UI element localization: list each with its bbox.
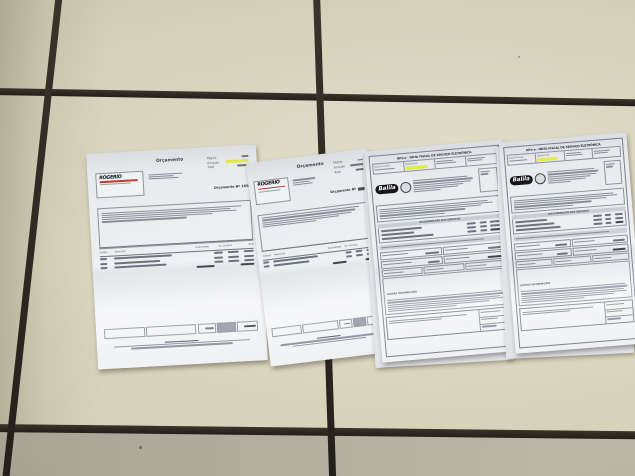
small-box [197, 323, 216, 334]
text-line [607, 318, 621, 320]
municipal-seal-icon [534, 173, 546, 185]
receipt-side-cells [605, 301, 634, 324]
outras-informacoes-label: OUTRAS INFORMAÇÕES [520, 282, 551, 287]
nfse-frame: NFS-e - NOTA FISCAL DE SERVIÇO ELETRÔNIC… [503, 138, 635, 348]
text-line [607, 310, 623, 312]
prestador-side-cell [478, 167, 499, 193]
orcamento-title: Orçamento [156, 157, 184, 164]
text-line [516, 244, 540, 247]
text-line [384, 271, 404, 274]
numero-nf-highlight-mark [537, 157, 557, 162]
text-line [517, 263, 535, 266]
total-label: Total [334, 169, 341, 174]
orcamento-numero: Orçamento Nº [330, 186, 367, 194]
floor-stain [518, 56, 520, 58]
text-line [467, 159, 482, 162]
text-line [574, 249, 596, 252]
prestador-side-cell [603, 160, 622, 185]
col-total: Total [232, 242, 254, 246]
total-label-gray-box [353, 316, 367, 327]
col-quantidade: Quantidade [186, 245, 209, 249]
prestador-info-lines [547, 167, 603, 185]
observacoes-box [302, 320, 339, 334]
text-line [565, 154, 583, 157]
outras-informacoes-label: OUTRAS INFORMAÇÕES [387, 291, 418, 297]
text-line [467, 264, 486, 267]
nfse-frame: NFS-e - NOTA FISCAL DE SERVIÇO ELETRÔNIC… [369, 145, 517, 357]
orcamento-numero: Orçamento Nº 1656 [214, 184, 251, 190]
balila-logo: Balila [509, 175, 533, 185]
col-codigo: Código [263, 253, 274, 257]
numero-label: Orçamento Nº [214, 185, 240, 190]
receipt-text [387, 310, 482, 339]
header-fields [148, 170, 196, 180]
text-line [594, 152, 608, 154]
orcamento-meta: Página Emissão Total [333, 157, 364, 174]
orcamento-title: Orçamento [296, 162, 324, 170]
text-line [436, 161, 456, 164]
text-line [426, 268, 444, 271]
text-line [481, 310, 500, 313]
numero-nf-highlight-mark [406, 165, 429, 170]
text-line [482, 325, 497, 327]
small-box [339, 318, 353, 329]
text-line [606, 166, 613, 168]
observacoes-box [146, 324, 196, 337]
floor-stain [139, 446, 142, 449]
header-fields [292, 175, 327, 187]
total-value-box [237, 320, 259, 331]
text-line [445, 247, 468, 250]
rogerio-logo: ROGERIO [95, 170, 144, 198]
municipal-seal-icon [400, 181, 412, 193]
col-vlr-unitario: Vlr. Unitário [209, 244, 232, 248]
balila-logo: Balila [375, 184, 399, 194]
text-line [517, 253, 543, 256]
prestador-info-lines [413, 174, 478, 194]
col-codigo: Código [99, 250, 115, 254]
logo-address-line [100, 183, 131, 186]
text-line [389, 314, 466, 322]
signature-box [104, 326, 145, 339]
text-line [594, 256, 611, 259]
col-vlr-unitario: Vlr. Unitário [341, 243, 358, 248]
text-line [149, 177, 179, 180]
rogerio-logo: ROGERIO [254, 177, 291, 206]
fine-print [111, 335, 254, 351]
document-orcamento-1: Orçamento Página Emissão Total Orçamento… [86, 144, 268, 369]
receipt-text [520, 303, 607, 331]
col-quantidade: Quantidade [324, 245, 341, 250]
orcamento-meta: Página Emissão Total [207, 153, 249, 169]
text-line [383, 261, 412, 265]
numero-label: Orçamento Nº [330, 187, 357, 194]
total-label: Total [208, 165, 215, 169]
text-line [573, 240, 594, 243]
signature-box [272, 324, 302, 337]
text-line [446, 256, 470, 259]
text-line [481, 318, 498, 321]
photo-of-documents-on-floor: Orçamento Página Emissão Total Orçamento… [0, 0, 635, 476]
text-line [481, 173, 489, 175]
text-line [548, 181, 571, 184]
document-nfse-2: NFS-e - NOTA FISCAL DE SERVIÇO ELETRÔNIC… [499, 132, 635, 354]
text-line [606, 303, 623, 306]
text-line [382, 253, 408, 256]
text-line [556, 260, 572, 262]
outras-informacoes: OUTRAS INFORMAÇÕES [516, 261, 633, 307]
total-label-gray-box [217, 321, 236, 332]
